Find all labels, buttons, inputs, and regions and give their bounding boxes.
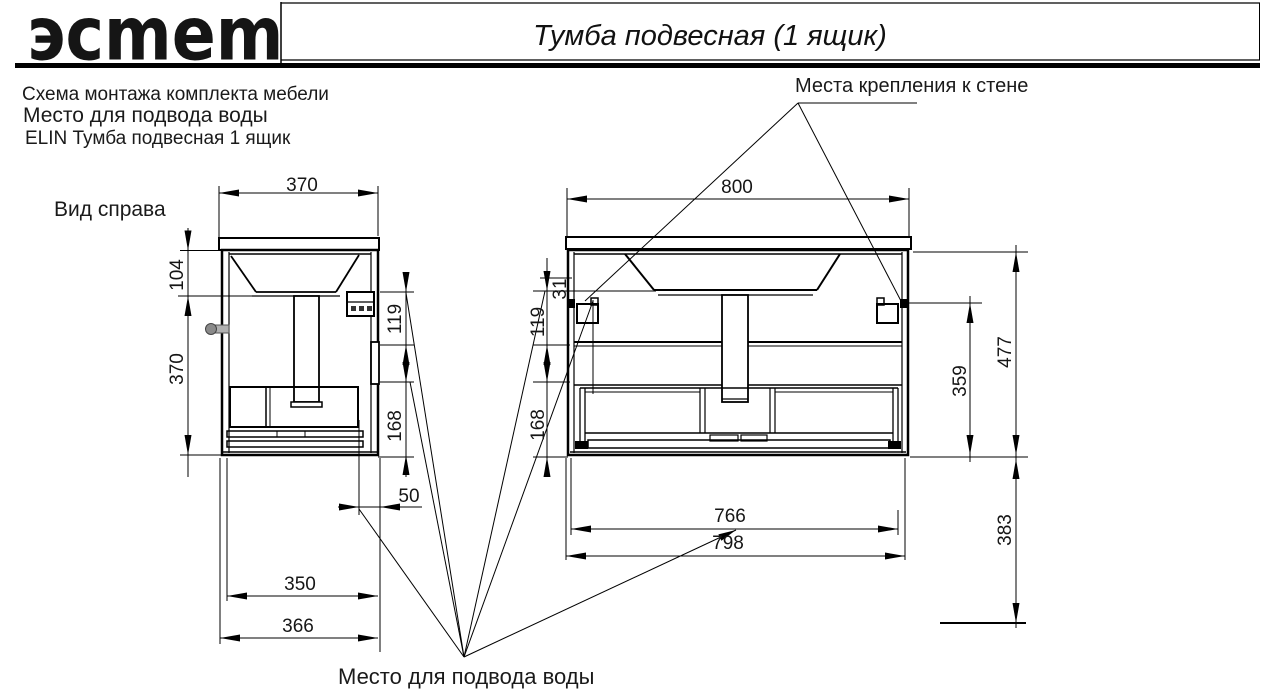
dim-front-left-lower: 168 <box>529 390 549 460</box>
side-view-drawing <box>206 238 380 455</box>
drawing-title: Тумба подвесная (1 ящик) <box>430 20 990 53</box>
dim-side-back-offset: 50 <box>374 487 444 507</box>
door-knob <box>206 324 230 335</box>
note-scheme: Схема монтажа комплекта мебели <box>22 84 329 106</box>
note-model: ELIN Тумба подвесная 1 ящик <box>25 128 290 150</box>
dim-side-upper-height: 104 <box>168 240 188 310</box>
dim-front-total-height: 477 <box>996 317 1016 387</box>
dim-front-bottom-inner: 766 <box>695 507 765 527</box>
dim-side-depth-inner: 350 <box>265 575 335 595</box>
dim-side-right-upper: 119 <box>386 284 406 354</box>
dim-side-right-lower: 168 <box>386 391 406 461</box>
brand-logo: эcmem <box>27 2 283 66</box>
dim-front-left-tiny: 31 <box>551 254 571 324</box>
wall-mount-label: Места крепления к стене <box>795 75 1028 98</box>
wall-mount-leader-lines <box>585 103 917 301</box>
front-view-drawing <box>566 237 911 455</box>
drawing-page: эcmem Тумба подвесная (1 ящик) Схема мон… <box>0 0 1262 690</box>
note-water: Место для подвода воды <box>23 104 268 128</box>
dim-front-inner-height: 359 <box>951 346 971 416</box>
dim-side-body-height: 370 <box>168 334 188 404</box>
dim-front-left-upper: 119 <box>529 287 549 357</box>
dim-side-depth-full: 366 <box>263 617 333 637</box>
dim-front-top-width: 800 <box>702 178 772 198</box>
dim-front-floor-gap: 383 <box>996 495 1016 565</box>
water-supply-label: Место для подвода воды <box>338 664 594 690</box>
side-wall-bracket <box>347 292 374 316</box>
side-view-label: Вид справа <box>54 198 166 222</box>
siphon-niche <box>371 342 379 384</box>
dim-side-top-width: 370 <box>267 176 337 196</box>
dim-front-bottom-full: 798 <box>693 534 763 554</box>
